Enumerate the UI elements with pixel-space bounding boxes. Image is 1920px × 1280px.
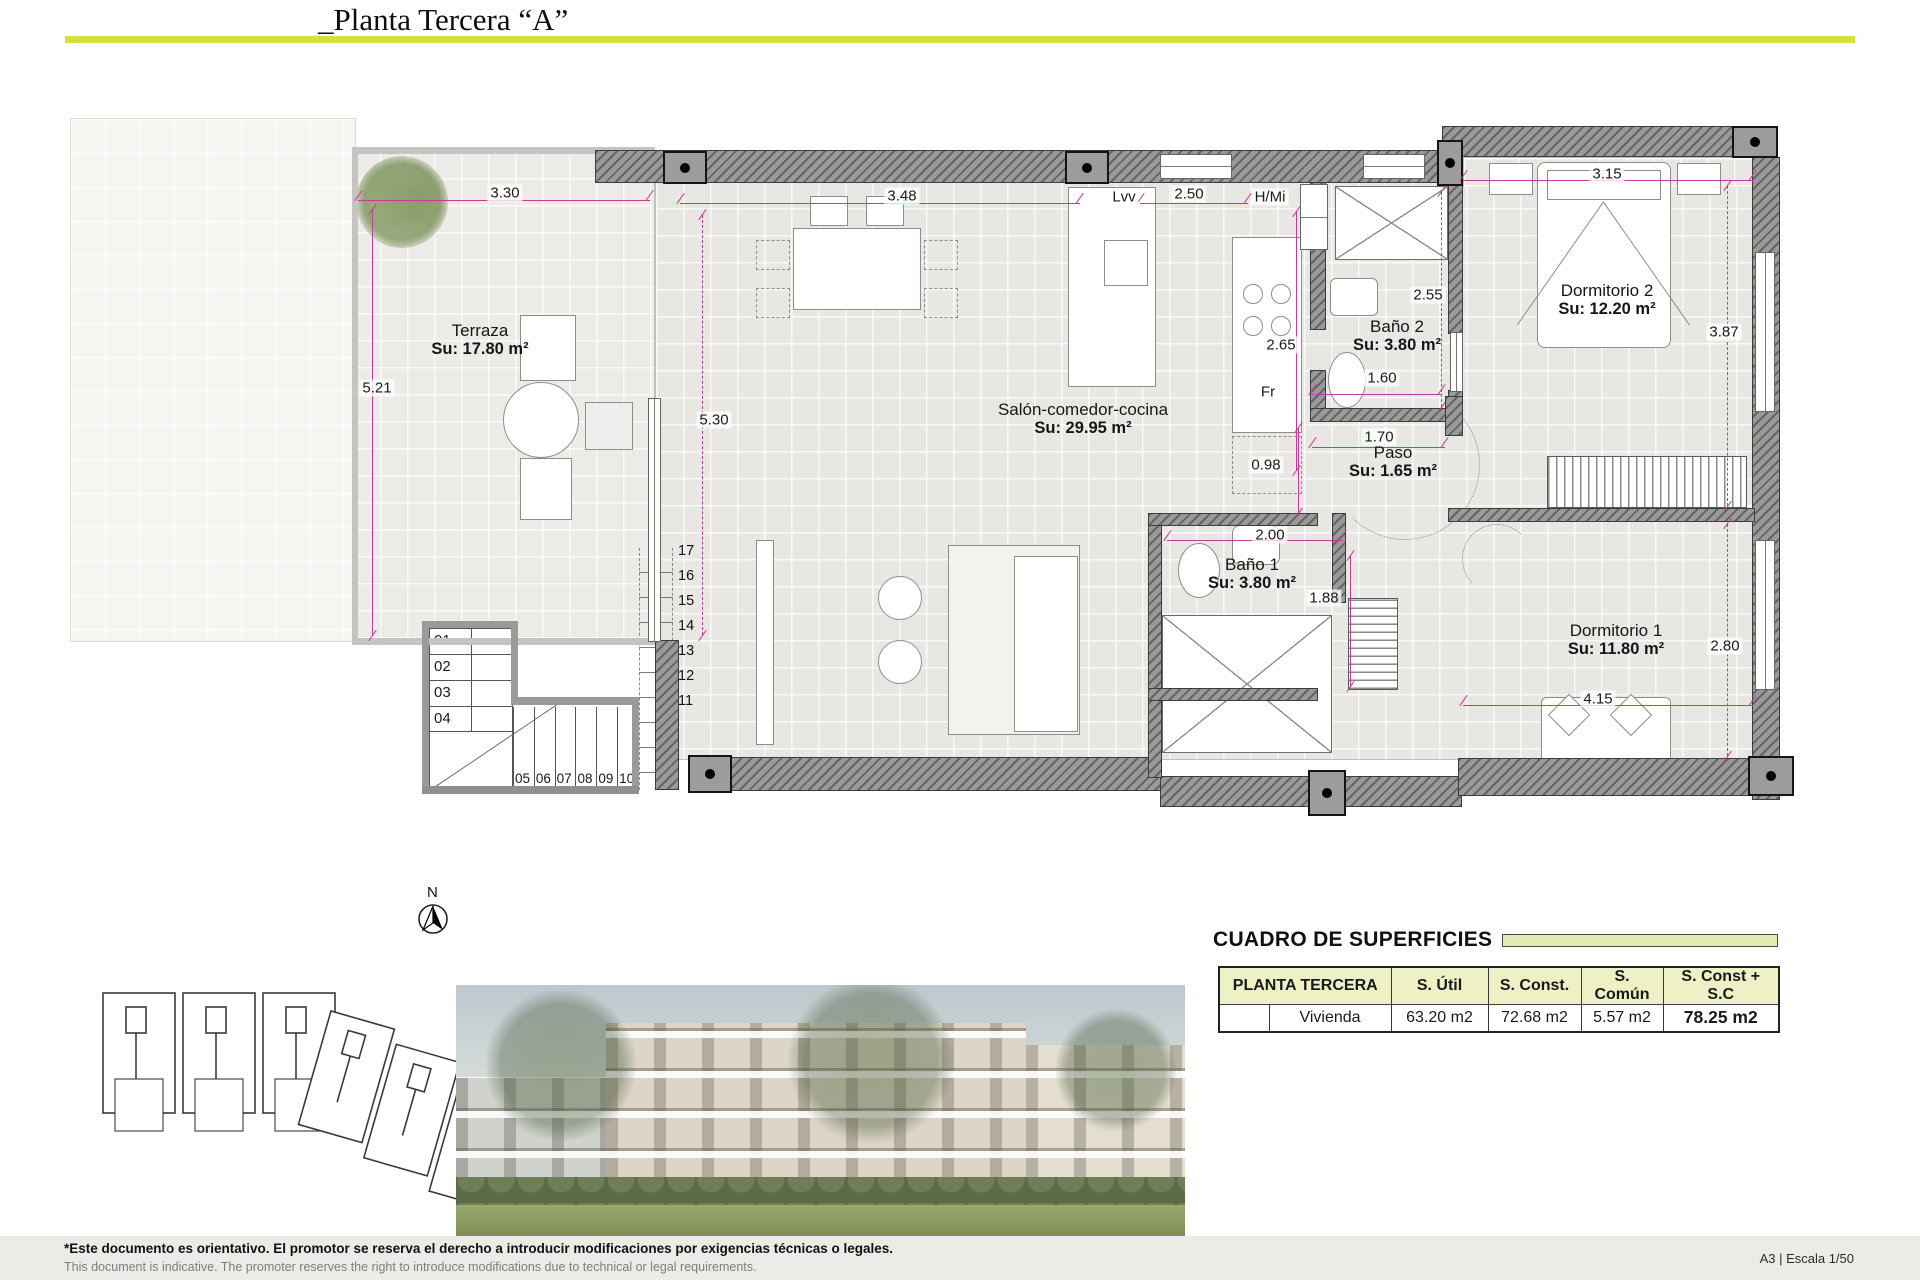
common-terrace-floor [70, 118, 356, 642]
side-table [878, 576, 922, 620]
terrace-bottom-wall [352, 638, 655, 645]
stair-step-number: 07 [557, 771, 572, 786]
dorm1-entry-closet [1348, 598, 1398, 690]
dim-label: 2.50 [1171, 186, 1206, 203]
dim-label: 5.30 [696, 412, 731, 429]
stair-step: 06 [535, 707, 556, 788]
dorm2-top-wall [1442, 126, 1772, 157]
site-key-plan [95, 985, 465, 1240]
stair-step [472, 681, 513, 706]
room-label-bano2: Baño 2 Su: 3.80 m² [1353, 317, 1441, 355]
room-area: Su: 12.20 m² [1558, 300, 1655, 319]
column-icon [688, 755, 732, 793]
sheet-scale: A3 | Escala 1/50 [1760, 1251, 1854, 1266]
stair-landing [429, 732, 513, 788]
stair-bottom-flight: 05 06 07 08 09 10 [513, 707, 639, 788]
stair-step-number: 15 [678, 593, 694, 609]
palm-tree [486, 985, 636, 1145]
dim-line [1350, 556, 1351, 686]
stair-step: 08 [576, 707, 597, 788]
north-arrow-icon [416, 902, 450, 936]
room-label-dorm2: Dormitorio 2 Su: 12.20 m² [1558, 281, 1655, 319]
dim-label: 5.21 [359, 380, 394, 397]
col-header: S. Const + S.C [1663, 967, 1779, 1005]
stair-step-number: 17 [678, 543, 694, 559]
hob-burner [1271, 316, 1291, 336]
bath2-toilet [1328, 352, 1366, 408]
terrace-round-table [503, 382, 579, 458]
stair-wall [511, 697, 639, 705]
dim-label: 4.15 [1580, 691, 1615, 708]
stair-step-number: 05 [515, 771, 530, 786]
dim-label: 2.80 [1707, 638, 1742, 655]
door-swing-arc [1462, 524, 1532, 594]
dorm2-window [1755, 252, 1775, 412]
dim-label: Lvv [1109, 189, 1138, 206]
floor-plan-sheet: _Planta Tercera “A” [0, 0, 1920, 1280]
row-label: Vivienda [1269, 1005, 1391, 1032]
bath1-top-wall [1148, 513, 1318, 526]
hob-burner [1271, 284, 1291, 304]
kitchen-counter [1232, 237, 1302, 433]
value-comun: 5.57 m2 [1581, 1005, 1663, 1032]
room-area: Su: 29.95 m² [998, 419, 1168, 438]
stair-step-number: 12 [678, 668, 694, 684]
room-name: Dormitorio 1 [1568, 621, 1664, 640]
dim-line [1312, 394, 1442, 395]
col-header: PLANTA TERCERA [1219, 967, 1391, 1005]
dim-label: 3.15 [1589, 166, 1624, 183]
dorm-divider-wall [1448, 508, 1755, 522]
bath2-side-window [1450, 332, 1463, 392]
kitchen-window [1160, 154, 1232, 179]
dim-label: 3.30 [487, 185, 522, 202]
dim-label: 1.60 [1364, 370, 1399, 387]
dim-label: H/Mi [1252, 189, 1289, 206]
terrace-lounger [520, 458, 572, 520]
palm-tree [1056, 1005, 1176, 1135]
value-total: 78.25 m2 [1663, 1005, 1779, 1032]
stair-step [472, 707, 513, 731]
dim-label: 1.88 [1306, 590, 1341, 607]
bath2-right-wall-upper [1448, 182, 1463, 334]
bath2-window [1363, 154, 1425, 179]
bath2-sink [1330, 278, 1378, 316]
value-construida: 72.68 m2 [1488, 1005, 1581, 1032]
page-title: _Planta Tercera “A” [318, 2, 568, 38]
surfaces-title-bar [1502, 934, 1778, 947]
disclaimer-es: *Este documento es orientativo. El promo… [64, 1241, 893, 1256]
sofa [1014, 556, 1078, 732]
surfaces-title: CUADRO DE SUPERFICIES [1213, 928, 1492, 952]
stair-step-number: 08 [577, 771, 592, 786]
stair-wall [632, 700, 639, 793]
stair-step-number: 04 [430, 707, 472, 731]
terrace-chair [585, 402, 633, 450]
room-name: Terraza [431, 321, 528, 340]
table-header-row: PLANTA TERCERA S. Útil S. Const. S. Comú… [1219, 967, 1779, 1005]
top-wall [595, 150, 1463, 183]
stair-wall [422, 621, 429, 793]
stair-step-number: 13 [678, 643, 694, 659]
nightstand [1489, 163, 1533, 195]
dining-chair-top [810, 196, 848, 226]
room-label-salon: Salón-comedor-cocina Su: 29.95 m² [998, 400, 1168, 438]
salon-bottom-wall [690, 757, 1162, 791]
room-name: Baño 1 [1208, 555, 1296, 574]
building-render-photo [456, 985, 1185, 1238]
dim-label: 2.00 [1252, 527, 1287, 544]
stair-wall [511, 621, 518, 703]
room-name: Baño 2 [1353, 317, 1441, 336]
terrace-sliding-door [648, 398, 661, 642]
tv-sideboard [756, 540, 774, 745]
dim-label: 0.98 [1248, 457, 1283, 474]
tree-plan-icon [356, 156, 448, 248]
room-name: Paso [1349, 443, 1437, 462]
dim-label: 2.55 [1410, 287, 1445, 304]
stair-step-number: 14 [678, 618, 694, 634]
kitchen-island [1068, 187, 1156, 387]
side-table [878, 640, 922, 684]
hob-burner [1243, 316, 1263, 336]
dim-label: 3.87 [1706, 324, 1741, 341]
room-name: Dormitorio 2 [1558, 281, 1655, 300]
room-label-dorm1: Dormitorio 1 Su: 11.80 m² [1568, 621, 1664, 659]
stair-wall [422, 621, 518, 628]
hob-burner [1243, 284, 1263, 304]
value-util: 63.20 m2 [1391, 1005, 1488, 1032]
dim-line [1140, 203, 1248, 204]
garden-lawn [456, 1205, 1185, 1238]
room-area: Su: 3.80 m² [1208, 574, 1296, 593]
dorm1-bottom-wall [1458, 758, 1755, 796]
room-label-terraza: Terraza Su: 17.80 m² [431, 321, 528, 359]
stair-step-number: 03 [430, 681, 472, 706]
room-area: Su: 3.80 m² [1353, 336, 1441, 355]
dorm1-window [1755, 540, 1775, 690]
column-icon [663, 151, 707, 184]
paso-wall-stub [1445, 396, 1463, 436]
stair-step-number: 09 [598, 771, 613, 786]
stair-step: 05 [514, 707, 535, 788]
dorm2-wardrobe [1547, 456, 1747, 508]
dining-table [793, 228, 921, 310]
col-header: S. Útil [1391, 967, 1488, 1005]
room-label-paso: Paso Su: 1.65 m² [1349, 443, 1437, 481]
stair-step-number: 16 [678, 568, 694, 584]
hmi-niche [1300, 184, 1328, 250]
bath1-bottom-wall [1148, 688, 1318, 701]
dim-line [1298, 428, 1299, 513]
dining-chair [756, 288, 790, 318]
col-header: S. Común [1581, 967, 1663, 1005]
dining-chair [924, 288, 958, 318]
dim-line [372, 210, 373, 635]
dim-label: 3.48 [884, 188, 919, 205]
sink-unit [1104, 240, 1148, 286]
room-name: Salón-comedor-cocina [998, 400, 1168, 419]
column-icon [1732, 126, 1778, 158]
col-header: S. Const. [1488, 967, 1581, 1005]
salon-left-bottom-wall [655, 640, 679, 790]
title-accent-bar [65, 36, 1855, 43]
stair-step-number: 06 [536, 771, 551, 786]
room-area: Su: 11.80 m² [1568, 640, 1664, 659]
room-area: Su: 17.80 m² [431, 340, 528, 359]
terrace-left-wall [352, 147, 358, 644]
room-area: Su: 1.65 m² [1349, 462, 1437, 481]
dim-label: 1.70 [1361, 429, 1396, 446]
disclaimer-en: This document is indicative. The promote… [64, 1260, 756, 1274]
stair-step: 09 [597, 707, 618, 788]
stair-wall [422, 786, 639, 794]
dim-label: Fr [1258, 384, 1278, 401]
column-icon [1065, 151, 1109, 184]
hall-left-wall [1148, 513, 1162, 778]
stair-step: 07 [556, 707, 577, 788]
dim-line [680, 203, 1080, 204]
north-label: N [427, 884, 438, 901]
bath2-shower [1335, 186, 1448, 260]
column-icon [1748, 756, 1794, 796]
nightstand [1677, 163, 1721, 195]
dining-chair [924, 240, 958, 270]
entry-closet [1162, 615, 1332, 753]
stair-step-number: 11 [678, 693, 693, 709]
table-row: Vivienda 63.20 m2 72.68 m2 5.57 m2 78.25… [1219, 1005, 1779, 1032]
empty-cell [1219, 1005, 1269, 1032]
stair-step [472, 655, 513, 680]
surfaces-table: PLANTA TERCERA S. Útil S. Const. S. Comú… [1218, 966, 1780, 1033]
room-label-bano1: Baño 1 Su: 3.80 m² [1208, 555, 1296, 593]
stair-step-number: 02 [430, 655, 472, 680]
column-icon [1308, 770, 1346, 816]
dining-chair [756, 240, 790, 270]
dim-line [1727, 186, 1728, 506]
dim-label: 2.65 [1263, 337, 1298, 354]
